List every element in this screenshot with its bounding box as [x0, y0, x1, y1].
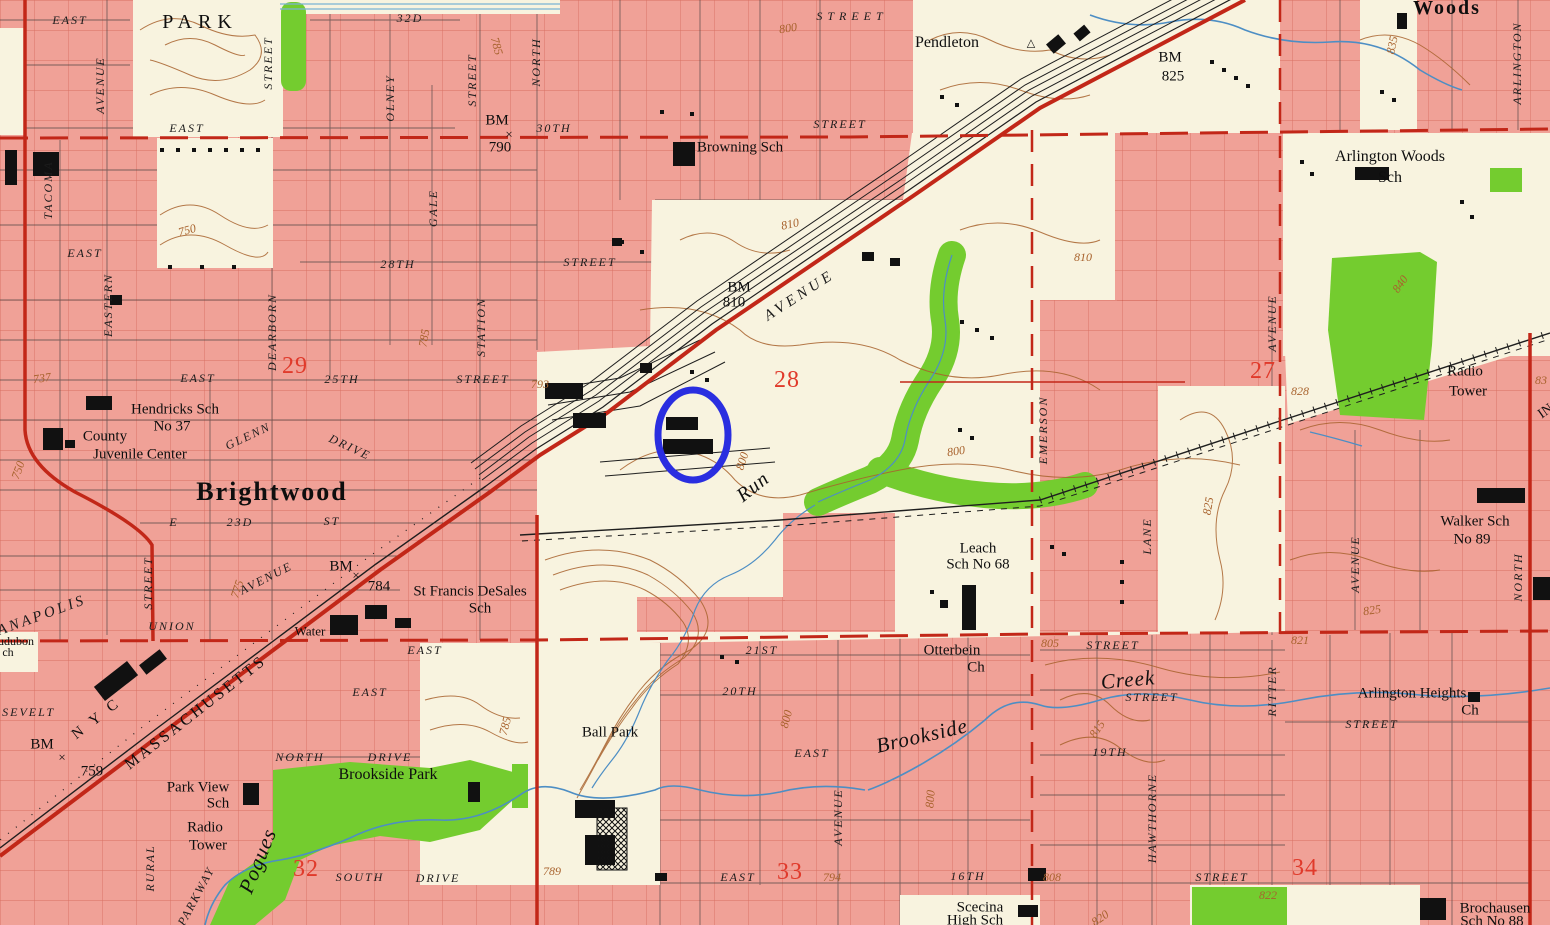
- street-label: RITTER: [1266, 665, 1278, 716]
- place-label: Otterbein: [924, 644, 981, 659]
- contour-label: 793: [531, 378, 549, 390]
- street-label: ST: [324, 515, 341, 527]
- street-label: 16TH: [950, 870, 985, 882]
- section-number: 32: [293, 857, 319, 881]
- place-label: Sch No 68: [946, 558, 1009, 573]
- street-label: STREET: [563, 256, 616, 268]
- place-label: ×: [58, 751, 65, 764]
- place-label: N Y C: [70, 695, 125, 743]
- contour-label: 789: [543, 865, 561, 877]
- place-label: County: [83, 430, 127, 445]
- place-label: BM: [1158, 51, 1181, 66]
- contour-label: 800: [778, 709, 794, 729]
- street-label: AVENUE: [832, 788, 844, 845]
- section-number: 28: [774, 368, 800, 392]
- place-label: Ch: [967, 661, 985, 676]
- place-label: Park View: [167, 781, 230, 796]
- place-label: Pendleton: [915, 35, 979, 51]
- street-label: LANE: [1141, 517, 1153, 554]
- place-label: BM: [329, 560, 352, 575]
- section-number: 29: [282, 354, 308, 378]
- place-label: Sch: [469, 602, 492, 617]
- section-number: 27: [1250, 359, 1276, 383]
- place-label: Juvenile Center: [93, 448, 187, 463]
- street-label: EAST: [794, 747, 829, 759]
- place-label: Arlington Woods: [1335, 149, 1445, 165]
- place-label: No 89: [1453, 533, 1490, 548]
- contour-label: 785: [497, 716, 513, 736]
- contour-label: 785: [417, 328, 432, 348]
- place-label: Browning Sch: [697, 141, 783, 156]
- street-label: NORTH: [275, 751, 324, 763]
- contour-label: 794: [823, 871, 841, 883]
- street-label: EAST: [52, 14, 87, 26]
- street-label: 19TH: [1092, 746, 1127, 758]
- street-label: STREET: [1345, 718, 1398, 730]
- street-label: EAST: [407, 644, 442, 656]
- street-label: UNION: [148, 620, 195, 632]
- section-number: 33: [777, 860, 803, 884]
- contour-label: 835: [1384, 35, 1399, 55]
- place-label: Ball Park: [582, 726, 638, 741]
- street-label: DEARBORN: [266, 293, 278, 371]
- street-label: STREET: [262, 36, 274, 89]
- street-label: DRIVE: [327, 432, 373, 462]
- contour-label: 828: [1291, 385, 1309, 397]
- street-label: TACOMA: [42, 160, 54, 219]
- street-label: STREET: [1195, 871, 1248, 883]
- street-label: STREET: [466, 53, 478, 106]
- street-label: 32D: [397, 12, 424, 24]
- street-label: EMERSON: [1037, 396, 1049, 465]
- map-labels: EASTPARK32DSTREETAVENUEOLNEYSTREETNORTHS…: [0, 0, 1550, 925]
- place-label: BM: [727, 281, 750, 296]
- street-label: EAST: [720, 871, 755, 883]
- place-label: Sch: [207, 797, 230, 812]
- place-label: PARK: [162, 12, 238, 32]
- street-label: 28TH: [380, 258, 415, 270]
- contour-label: 805: [1041, 637, 1059, 649]
- contour-label: 822: [1259, 889, 1277, 901]
- place-label: ch: [2, 646, 13, 658]
- street-label: NORTH: [1512, 552, 1524, 601]
- place-label: 759: [81, 765, 104, 780]
- place-label: 810: [723, 296, 746, 311]
- contour-label: 810: [1074, 251, 1092, 263]
- contour-label: 83: [1535, 374, 1547, 386]
- street-label: 20TH: [722, 685, 757, 697]
- place-label: Sch: [1378, 170, 1402, 186]
- street-label: AVENUE: [94, 56, 106, 113]
- place-label: St Francis DeSales: [413, 585, 526, 600]
- street-label: NORTH: [530, 37, 542, 86]
- street-label: E: [169, 516, 178, 528]
- street-label: ANAPOLIS: [0, 593, 88, 639]
- place-label: 790: [489, 141, 512, 156]
- street-label: STREET: [1125, 691, 1178, 703]
- place-label: Tower: [1449, 385, 1487, 400]
- place-label: Brightwood: [196, 479, 347, 505]
- street-label: ARLINGTON: [1511, 21, 1523, 104]
- water-label: Pogues: [236, 826, 281, 897]
- street-label: AVENUE: [1349, 535, 1361, 592]
- street-label: STREET: [1086, 639, 1139, 651]
- place-label: High Sch: [947, 914, 1003, 925]
- section-number: 34: [1292, 856, 1318, 880]
- place-label: Radio: [1447, 365, 1483, 380]
- contour-label: 808: [1043, 871, 1061, 883]
- street-label: GLENN: [223, 420, 272, 451]
- street-label: EAST: [169, 122, 204, 134]
- contour-label: 800: [923, 790, 937, 809]
- water-label: Creek: [1100, 667, 1156, 693]
- place-label: BM: [30, 738, 53, 753]
- street-label: 25TH: [324, 373, 359, 385]
- place-label: Walker Sch: [1440, 515, 1509, 530]
- street-label: STREET: [816, 10, 887, 22]
- place-label: Leach: [960, 542, 997, 557]
- place-label: Arlington Heights: [1358, 687, 1467, 702]
- street-label: OLNEY: [384, 74, 396, 121]
- street-label: PARKWAY: [175, 865, 216, 925]
- contour-label: 800: [946, 444, 965, 458]
- water-label: Brookside: [874, 715, 970, 756]
- contour-label: 840: [1390, 273, 1410, 295]
- place-label: Radio: [187, 821, 223, 836]
- contour-label: 800: [778, 21, 797, 35]
- contour-label: 820: [1089, 908, 1111, 925]
- street-label: STATION: [475, 297, 487, 357]
- street-label: EAST: [67, 247, 102, 259]
- contour-label: 737: [32, 371, 51, 385]
- street-label: RURAL: [144, 844, 156, 891]
- street-label: 21ST: [746, 644, 779, 656]
- contour-label: 750: [9, 459, 26, 480]
- place-label: IN: [1536, 402, 1550, 422]
- street-label: 30TH: [536, 122, 571, 134]
- place-label: Hendricks Sch: [131, 403, 219, 418]
- water-label: Run: [733, 468, 773, 505]
- contour-label: 821: [1291, 634, 1309, 646]
- street-label: OOSEVELT: [0, 706, 55, 718]
- place-label: Woods: [1413, 0, 1481, 18]
- street-label: STREET: [456, 373, 509, 385]
- contour-label: 785: [489, 36, 505, 56]
- contour-label: 800: [734, 451, 751, 472]
- place-label: Ch: [1461, 704, 1479, 719]
- street-label: STREET: [142, 556, 154, 609]
- place-label: Sch No 88: [1460, 915, 1523, 925]
- place-label: No 37: [153, 420, 190, 435]
- street-label: HAWTHORNE: [1146, 773, 1158, 863]
- place-label: Brookside Park: [338, 767, 437, 783]
- street-label: DRIVE: [368, 751, 413, 763]
- place-label: ×: [352, 569, 359, 582]
- street-label: AVENUE: [238, 560, 295, 597]
- place-label: 784: [368, 580, 391, 595]
- place-label: △: [1027, 39, 1035, 50]
- topo-map: EASTPARK32DSTREETAVENUEOLNEYSTREETNORTHS…: [0, 0, 1550, 925]
- street-label: STREET: [813, 118, 866, 130]
- street-label: GALE: [427, 189, 439, 227]
- street-label: EAST: [352, 686, 387, 698]
- contour-label: 750: [177, 222, 197, 238]
- street-label: AVENUE: [762, 268, 838, 325]
- street-label: DRIVE: [416, 872, 461, 884]
- street-label: EAST: [180, 372, 215, 384]
- place-label: Water: [295, 625, 326, 638]
- place-label: Tower: [189, 839, 227, 854]
- contour-label: 825: [1201, 496, 1216, 516]
- contour-label: 825: [1362, 603, 1381, 617]
- contour-label: 815: [1087, 718, 1107, 740]
- street-label: AVENUE: [1266, 294, 1278, 351]
- street-label: 23D: [227, 516, 254, 528]
- street-label: SOUTH: [336, 871, 385, 883]
- place-label: MASSACHUSETTS: [122, 653, 270, 773]
- street-label: EASTERN: [102, 273, 114, 337]
- place-label: 825: [1162, 70, 1185, 85]
- contour-label: 810: [780, 216, 800, 231]
